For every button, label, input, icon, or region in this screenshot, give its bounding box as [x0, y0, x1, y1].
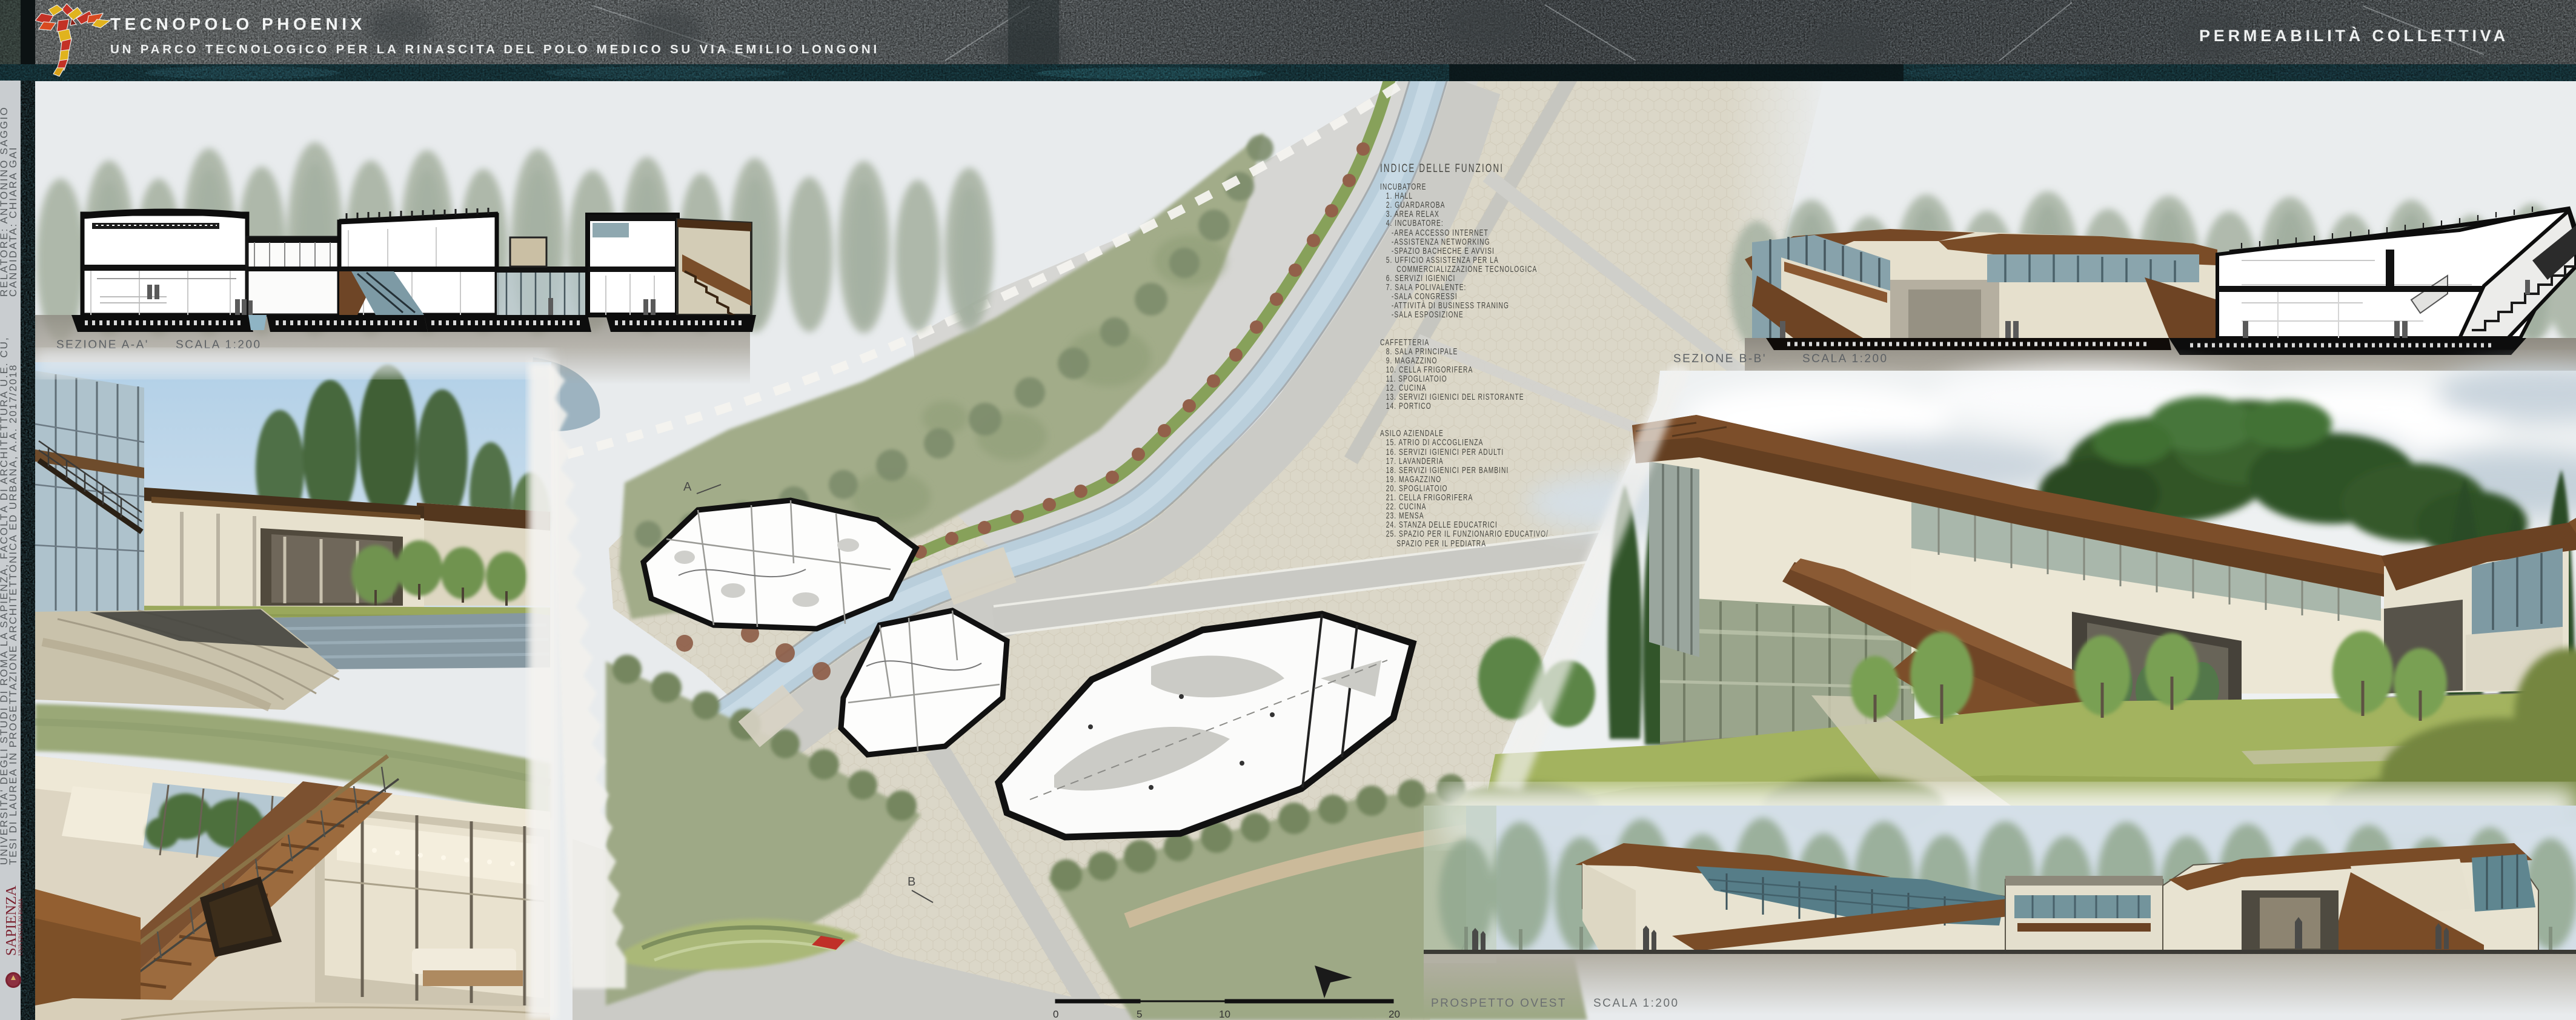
svg-text:2. GUARDAROBA: 2. GUARDAROBA	[1386, 200, 1446, 210]
svg-text:14. PORTICO: 14. PORTICO	[1386, 401, 1432, 411]
svg-text:11. SPOGLIATOIO: 11. SPOGLIATOIO	[1386, 374, 1447, 383]
svg-text:13. SERVIZI IGIENICI DEL RISTO: 13. SERVIZI IGIENICI DEL RISTORANTE	[1386, 392, 1524, 402]
svg-text:PERMEABILITÀ COLLETTIVA: PERMEABILITÀ COLLETTIVA	[2199, 26, 2509, 45]
svg-text:SCALA 1:200: SCALA 1:200	[1593, 997, 1679, 1010]
svg-text:INDICE DELLE FUNZIONI: INDICE DELLE FUNZIONI	[1380, 162, 1504, 175]
svg-text:21. CELLA FRIGORIFERA: 21. CELLA FRIGORIFERA	[1386, 492, 1473, 502]
svg-text:19. MAGAZZINO: 19. MAGAZZINO	[1386, 474, 1441, 484]
svg-text:5: 5	[1137, 1008, 1142, 1020]
svg-text:4. INCUBATORE:: 4. INCUBATORE:	[1386, 218, 1444, 228]
svg-text:-SALA CONGRESSI: -SALA CONGRESSI	[1392, 291, 1458, 301]
svg-text:8. SALA PRINCIPALE: 8. SALA PRINCIPALE	[1386, 346, 1458, 356]
svg-text:6. SERVIZI IGIENICI: 6. SERVIZI IGIENICI	[1386, 273, 1456, 283]
svg-text:16. SERVIZI IGIENICI PER ADULT: 16. SERVIZI IGIENICI PER ADULTI	[1386, 447, 1504, 457]
svg-text:22. CUCINA: 22. CUCINA	[1386, 502, 1427, 511]
svg-text:-ASSISTENZA NETWORKING: -ASSISTENZA NETWORKING	[1392, 237, 1490, 247]
svg-text:CANDIDATA: CHIARA GAI: CANDIDATA: CHIARA GAI	[7, 146, 19, 297]
svg-text:TECNOPOLO PHOENIX: TECNOPOLO PHOENIX	[110, 15, 366, 33]
svg-text:10. CELLA FRIGORIFERA: 10. CELLA FRIGORIFERA	[1386, 365, 1473, 374]
svg-text:ASILO AZIENDALE: ASILO AZIENDALE	[1380, 428, 1444, 438]
svg-text:PROSPETTO OVEST: PROSPETTO OVEST	[1431, 997, 1567, 1010]
svg-text:SCALA 1:200: SCALA 1:200	[176, 339, 262, 351]
svg-text:-AREA ACCESSO INTERNET: -AREA ACCESSO INTERNET	[1392, 228, 1489, 237]
svg-text:1. HALL: 1. HALL	[1386, 191, 1413, 200]
svg-text:TESI DI LAUREA IN PROGETTAZION: TESI DI LAUREA IN PROGETTAZIONE ARCHITET…	[7, 364, 19, 865]
svg-text:0: 0	[1053, 1008, 1058, 1020]
svg-text:24. STANZA DELLE EDUCATRICI: 24. STANZA DELLE EDUCATRICI	[1386, 520, 1498, 529]
svg-text:-ATTIVITÀ DI BUSINESS TRANING: -ATTIVITÀ DI BUSINESS TRANING	[1392, 300, 1509, 310]
svg-text:20. SPOGLIATOIO: 20. SPOGLIATOIO	[1386, 483, 1448, 493]
svg-text:UN PARCO TECNOLOGICO PER LA RI: UN PARCO TECNOLOGICO PER LA RINASCITA DE…	[110, 42, 880, 56]
svg-text:CAFFETTERIA: CAFFETTERIA	[1380, 337, 1429, 347]
svg-text:INCUBATORE: INCUBATORE	[1380, 182, 1427, 191]
svg-text:UNIVERSITÀ DI ROMA: UNIVERSITÀ DI ROMA	[18, 898, 24, 956]
svg-text:5. UFFICIO ASSISTENZA PER LA: 5. UFFICIO ASSISTENZA PER LA	[1386, 255, 1499, 265]
svg-text:A: A	[683, 480, 692, 494]
svg-text:25. SPAZIO PER IL FUNZIONARIO: 25. SPAZIO PER IL FUNZIONARIO EDUCATIVO/	[1386, 529, 1549, 538]
svg-text:-SPAZIO BACHECHE E AVVISI: -SPAZIO BACHECHE E AVVISI	[1392, 246, 1495, 256]
svg-text:COMMERCIALIZZAZIONE TECNOLOGIC: COMMERCIALIZZAZIONE TECNOLOGICA	[1396, 264, 1537, 274]
svg-text:SEZIONE B-B': SEZIONE B-B'	[1673, 353, 1767, 365]
svg-text:SPAZIO PER IL PEDIATRA: SPAZIO PER IL PEDIATRA	[1396, 538, 1486, 548]
svg-text:7. SALA POLIVALENTE:: 7. SALA POLIVALENTE:	[1386, 282, 1467, 292]
svg-text:SCALA 1:200: SCALA 1:200	[1802, 353, 1888, 365]
svg-text:-SALA ESPOSIZIONE: -SALA ESPOSIZIONE	[1392, 310, 1464, 319]
svg-text:B: B	[908, 875, 917, 889]
svg-text:18. SERVIZI IGIENICI PER BAMBI: 18. SERVIZI IGIENICI PER BAMBINI	[1386, 465, 1509, 475]
svg-text:3. AREA RELAX: 3. AREA RELAX	[1386, 209, 1439, 219]
svg-text:20: 20	[1389, 1008, 1400, 1020]
svg-text:17. LAVANDERIA: 17. LAVANDERIA	[1386, 456, 1444, 466]
svg-text:9. MAGAZZINO: 9. MAGAZZINO	[1386, 356, 1438, 365]
svg-text:SEZIONE A-A': SEZIONE A-A'	[56, 339, 149, 351]
svg-text:15. ATRIO DI ACCOGLIENZA: 15. ATRIO DI ACCOGLIENZA	[1386, 437, 1484, 447]
svg-text:23. MENSA: 23. MENSA	[1386, 511, 1424, 520]
svg-text:10: 10	[1219, 1008, 1230, 1020]
svg-text:12. CUCINA: 12. CUCINA	[1386, 383, 1427, 392]
